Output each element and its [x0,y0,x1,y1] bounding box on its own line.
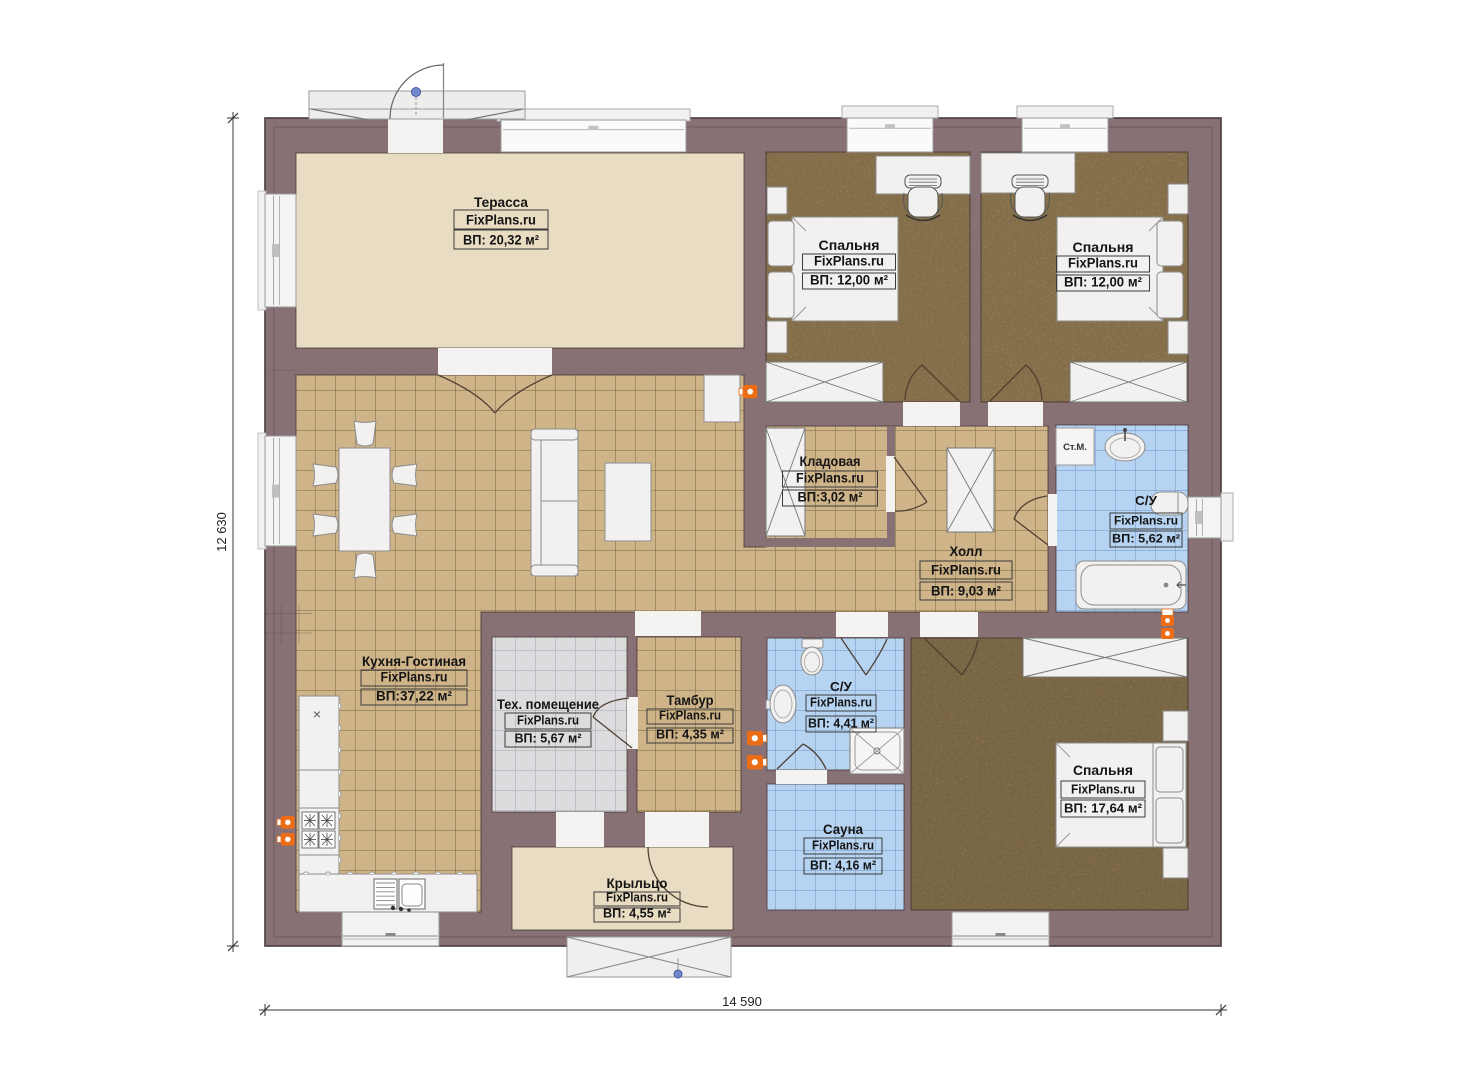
svg-text:ВП: 4,41 м²: ВП: 4,41 м² [808,717,874,731]
svg-text:ВП: 9,03 м²: ВП: 9,03 м² [931,584,1001,599]
svg-text:Кладовая: Кладовая [800,453,861,469]
svg-text:FixPlans.ru: FixPlans.ru [796,471,864,486]
svg-text:ВП: 4,35 м²: ВП: 4,35 м² [656,728,724,742]
svg-text:ВП:37,22 м²: ВП:37,22 м² [376,689,452,704]
svg-text:FixPlans.ru: FixPlans.ru [812,839,874,853]
svg-text:ВП: 12,00 м²: ВП: 12,00 м² [1064,275,1142,290]
svg-text:С/У: С/У [830,679,853,694]
svg-text:ВП: 4,16 м²: ВП: 4,16 м² [810,859,876,873]
svg-text:ВП: 4,55 м²: ВП: 4,55 м² [603,907,671,921]
svg-text:С/У: С/У [1135,493,1158,508]
svg-text:14 590: 14 590 [722,994,762,1009]
svg-text:Ст.М.: Ст.М. [1063,442,1087,453]
svg-text:Кухня-Гостиная: Кухня-Гостиная [362,653,466,669]
svg-text:FixPlans.ru: FixPlans.ru [466,213,536,228]
svg-text:ВП: 5,62 м²: ВП: 5,62 м² [1112,532,1180,546]
svg-text:FixPlans.ru: FixPlans.ru [381,670,448,685]
svg-text:Терасса: Терасса [474,194,528,210]
svg-text:Тамбур: Тамбур [667,693,714,708]
svg-text:FixPlans.ru: FixPlans.ru [814,254,884,269]
svg-text:ВП:3,02 м²: ВП:3,02 м² [798,490,863,505]
svg-text:ВП: 17,64 м²: ВП: 17,64 м² [1064,802,1142,816]
svg-text:FixPlans.ru: FixPlans.ru [1114,514,1178,528]
svg-text:ВП: 5,67 м²: ВП: 5,67 м² [515,732,582,746]
svg-text:FixPlans.ru: FixPlans.ru [810,696,872,710]
svg-text:Спальня: Спальня [819,237,880,253]
svg-text:Крыльцо: Крыльцо [607,876,668,891]
svg-text:Тех. помещение: Тех. помещение [497,697,599,712]
svg-text:Спальня: Спальня [1073,239,1134,255]
svg-text:FixPlans.ru: FixPlans.ru [931,563,1001,578]
svg-text:FixPlans.ru: FixPlans.ru [606,891,668,905]
svg-text:Сауна: Сауна [823,822,863,837]
svg-text:FixPlans.ru: FixPlans.ru [1071,783,1135,797]
svg-text:FixPlans.ru: FixPlans.ru [659,709,721,723]
svg-text:ВП: 12,00 м²: ВП: 12,00 м² [810,273,888,288]
svg-text:ВП: 20,32 м²: ВП: 20,32 м² [463,233,539,248]
svg-text:Холл: Холл [950,543,983,559]
svg-text:Спальня: Спальня [1073,763,1133,778]
svg-text:FixPlans.ru: FixPlans.ru [517,714,579,728]
svg-text:12 630: 12 630 [214,512,229,552]
svg-text:×: × [313,706,321,722]
svg-text:FixPlans.ru: FixPlans.ru [1068,256,1138,271]
